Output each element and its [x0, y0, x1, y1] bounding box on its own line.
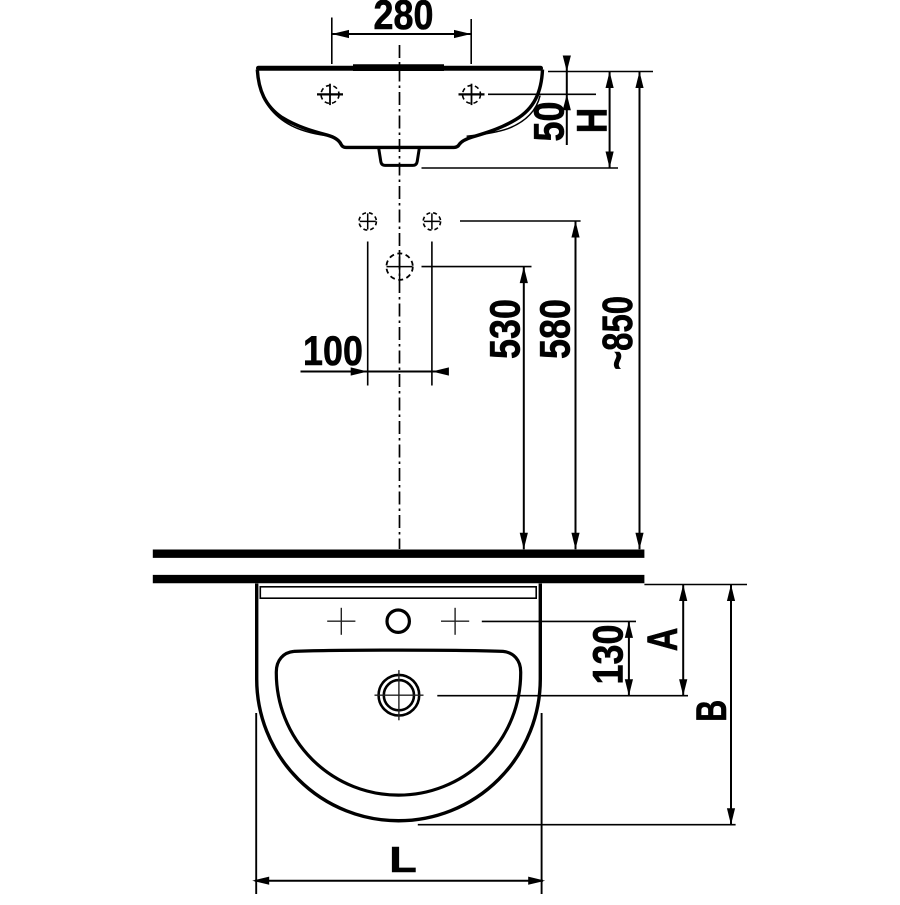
svg-text:A: A	[639, 628, 687, 652]
svg-text:580: 580	[532, 299, 580, 359]
svg-text:~850: ~850	[594, 296, 642, 370]
svg-text:130: 130	[585, 625, 633, 685]
svg-text:H: H	[568, 108, 616, 133]
svg-text:280: 280	[374, 0, 434, 39]
svg-text:B: B	[687, 700, 736, 722]
svg-text:530: 530	[482, 299, 530, 359]
svg-text:L: L	[389, 839, 416, 880]
svg-text:100: 100	[303, 329, 363, 375]
svg-text:50: 50	[525, 102, 573, 142]
